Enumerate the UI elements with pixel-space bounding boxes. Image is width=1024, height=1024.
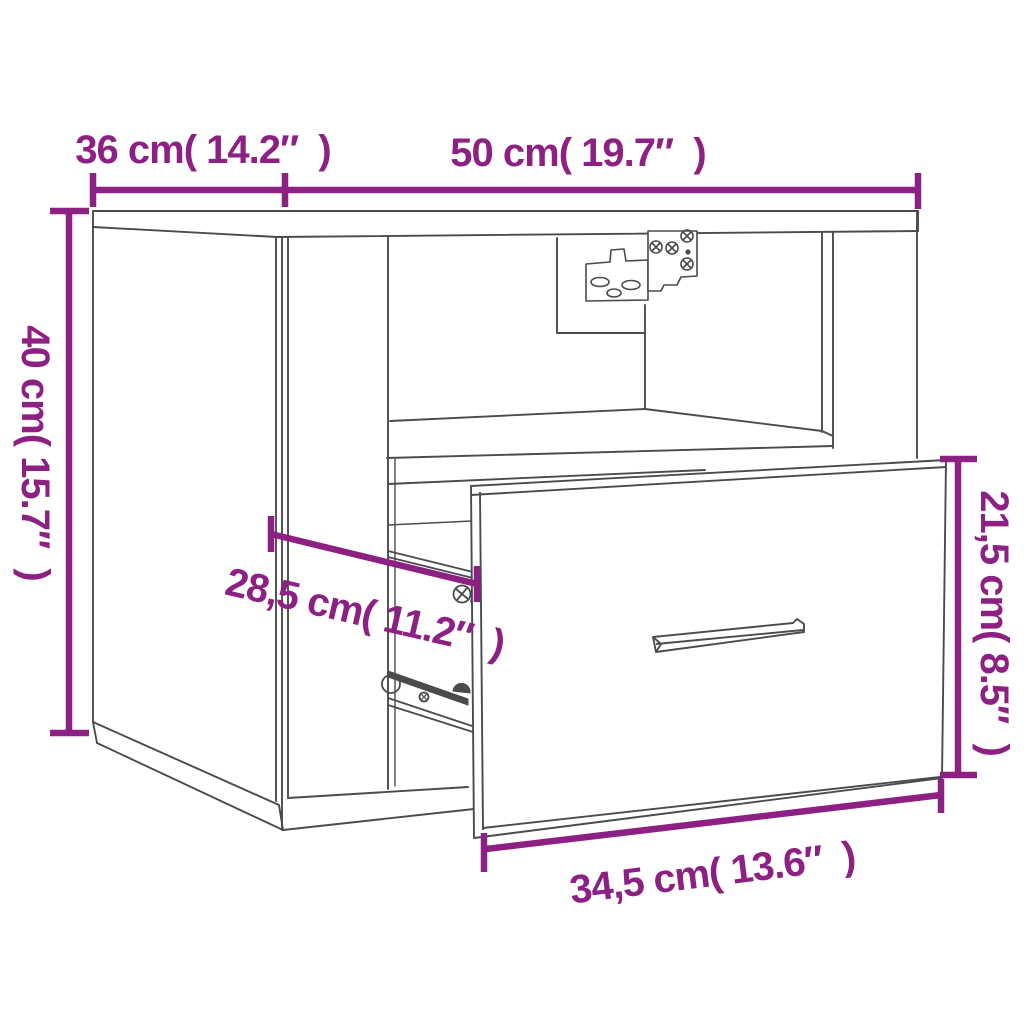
slide-screw-cross — [421, 694, 427, 700]
front-bottom-edge — [288, 787, 468, 798]
side-bottom-edge — [93, 722, 279, 805]
bracket-slot-2 — [622, 281, 640, 290]
dimension-label-depth: 36 cm( 14.2″ ) — [75, 128, 330, 172]
bracket-slot-1 — [591, 278, 609, 287]
front-bottom-strip-edge — [283, 809, 474, 830]
top-panel — [93, 211, 918, 237]
screw-dot — [686, 250, 690, 254]
drawer-side-top-edge — [388, 521, 472, 525]
wall-mount-bracket — [586, 230, 697, 301]
bottom-strip-lower-edge — [97, 743, 283, 830]
slide-screw-cross — [456, 588, 468, 600]
dimension-depth — [93, 173, 285, 207]
bracket-slot-3 — [607, 289, 621, 297]
diagram-canvas: 36 cm( 14.2″ ) 50 cm( 19.7″ ) 40 cm( 15.… — [0, 0, 1024, 1024]
bottom-strip-left-cap — [93, 722, 97, 743]
shelf-front-top-edge — [387, 446, 833, 458]
top-panel-bottom-edge — [93, 227, 918, 237]
niche-right-bottom-edge — [645, 409, 833, 436]
rail-line — [388, 551, 477, 573]
rail-line — [388, 705, 473, 732]
roller-right — [453, 683, 470, 693]
dimension-label-height: 40 cm( 15.7″ ) — [13, 325, 57, 580]
dimension-label-width: 50 cm( 19.7″ ) — [450, 131, 705, 175]
drawer — [471, 460, 946, 838]
niche-back-bottom-edge — [390, 409, 645, 421]
left-side-panel — [93, 227, 283, 830]
dimension-width — [285, 173, 918, 209]
dimension-label-drawer-front-width: 34,5 cm( 13.6″ ) — [567, 834, 857, 913]
drawer-front-outer — [471, 460, 946, 838]
dimension-label-drawer-front-height: 21,5 cm( 8.5″ ) — [972, 490, 1016, 756]
product-dimension-diagram: 36 cm( 14.2″ ) 50 cm( 19.7″ ) 40 cm( 15.… — [0, 0, 1024, 1024]
